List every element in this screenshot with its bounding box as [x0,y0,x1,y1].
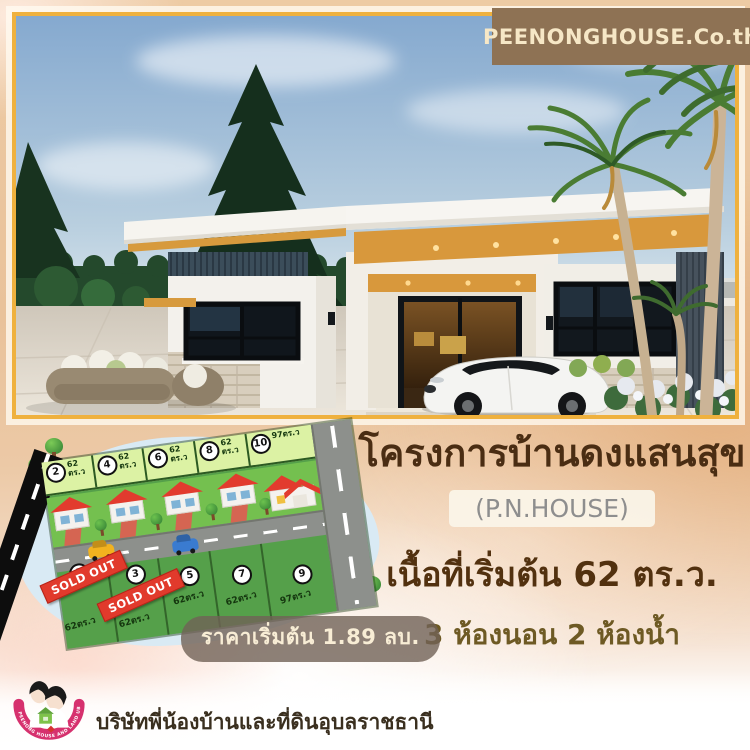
project-subtitle-badge: (P.N.HOUSE) [449,490,655,527]
plot-area-label: 62ตร.ว [63,613,97,635]
company-logo: PEENONG HOUSE AND LAND UBON [10,672,88,750]
plot-area-label: 62ตร.ว [224,587,258,609]
rooms-line: 3 ห้องนอน 2 ห้องน้ำ [424,613,680,657]
plot-area-label: 62 ตร.ว [220,436,246,457]
plot-2: 2 62 ตร.ว [41,455,97,494]
plot-number: 2 [45,461,68,484]
footer: PEENONG HOUSE AND LAND UBON บริษัทพี่น้อ… [0,670,750,750]
tree-icon [150,512,164,526]
site-plan-plate: 2 62 ตร.ว 4 62 ตร.ว 6 62 ตร.ว 8 62 ตร.ว … [41,419,376,649]
plot-area-label: 97ตร.ว [271,428,300,441]
plot-4: 4 62 ตร.ว [93,448,149,487]
house-icon [220,483,256,508]
project-title: โครงการบ้านดงแสนสุข [358,430,745,478]
plot-number: 10 [249,433,272,456]
brand-name: PEENONGHOUSE.Co.th [483,25,750,49]
brand-badge: PEENONGHOUSE.Co.th [492,8,750,65]
house-photo [12,12,739,419]
house-icon [109,499,145,524]
price-badge: ราคาเริ่มต้น 1.89 ลบ. [181,616,440,662]
plot-area-label: 62 ตร.ว [118,451,144,472]
area-line: เนื้อที่เริ่มต้น 62 ตร.ว. [386,547,718,601]
plot-area-label: 97ตร.ว [278,586,312,608]
plot-8: 8 62 ตร.ว [195,434,251,473]
plot-number: 8 [198,440,221,463]
plot-number: 7 [231,564,254,587]
house-icon [53,507,89,532]
tree-icon [94,518,108,532]
plot-area-label: 62 ตร.ว [66,458,92,479]
company-name: บริษัทพี่น้องบ้านและที่ดินอุบลราชธานี [96,706,433,739]
plot-10: 10 97ตร.ว [246,425,315,466]
plot-number: 6 [147,447,170,470]
house-icon [164,491,200,516]
plot-9: 9 97ตร.ว [262,535,337,620]
big-house-icon [259,462,325,518]
plot-area-label: 62 ตร.ว [169,443,195,464]
plot-number: 4 [96,454,119,477]
plot-number: 9 [291,563,314,586]
tree-icon [205,503,219,517]
plot-6: 6 62 ตร.ว [144,441,200,480]
blue-car-icon [172,538,199,554]
